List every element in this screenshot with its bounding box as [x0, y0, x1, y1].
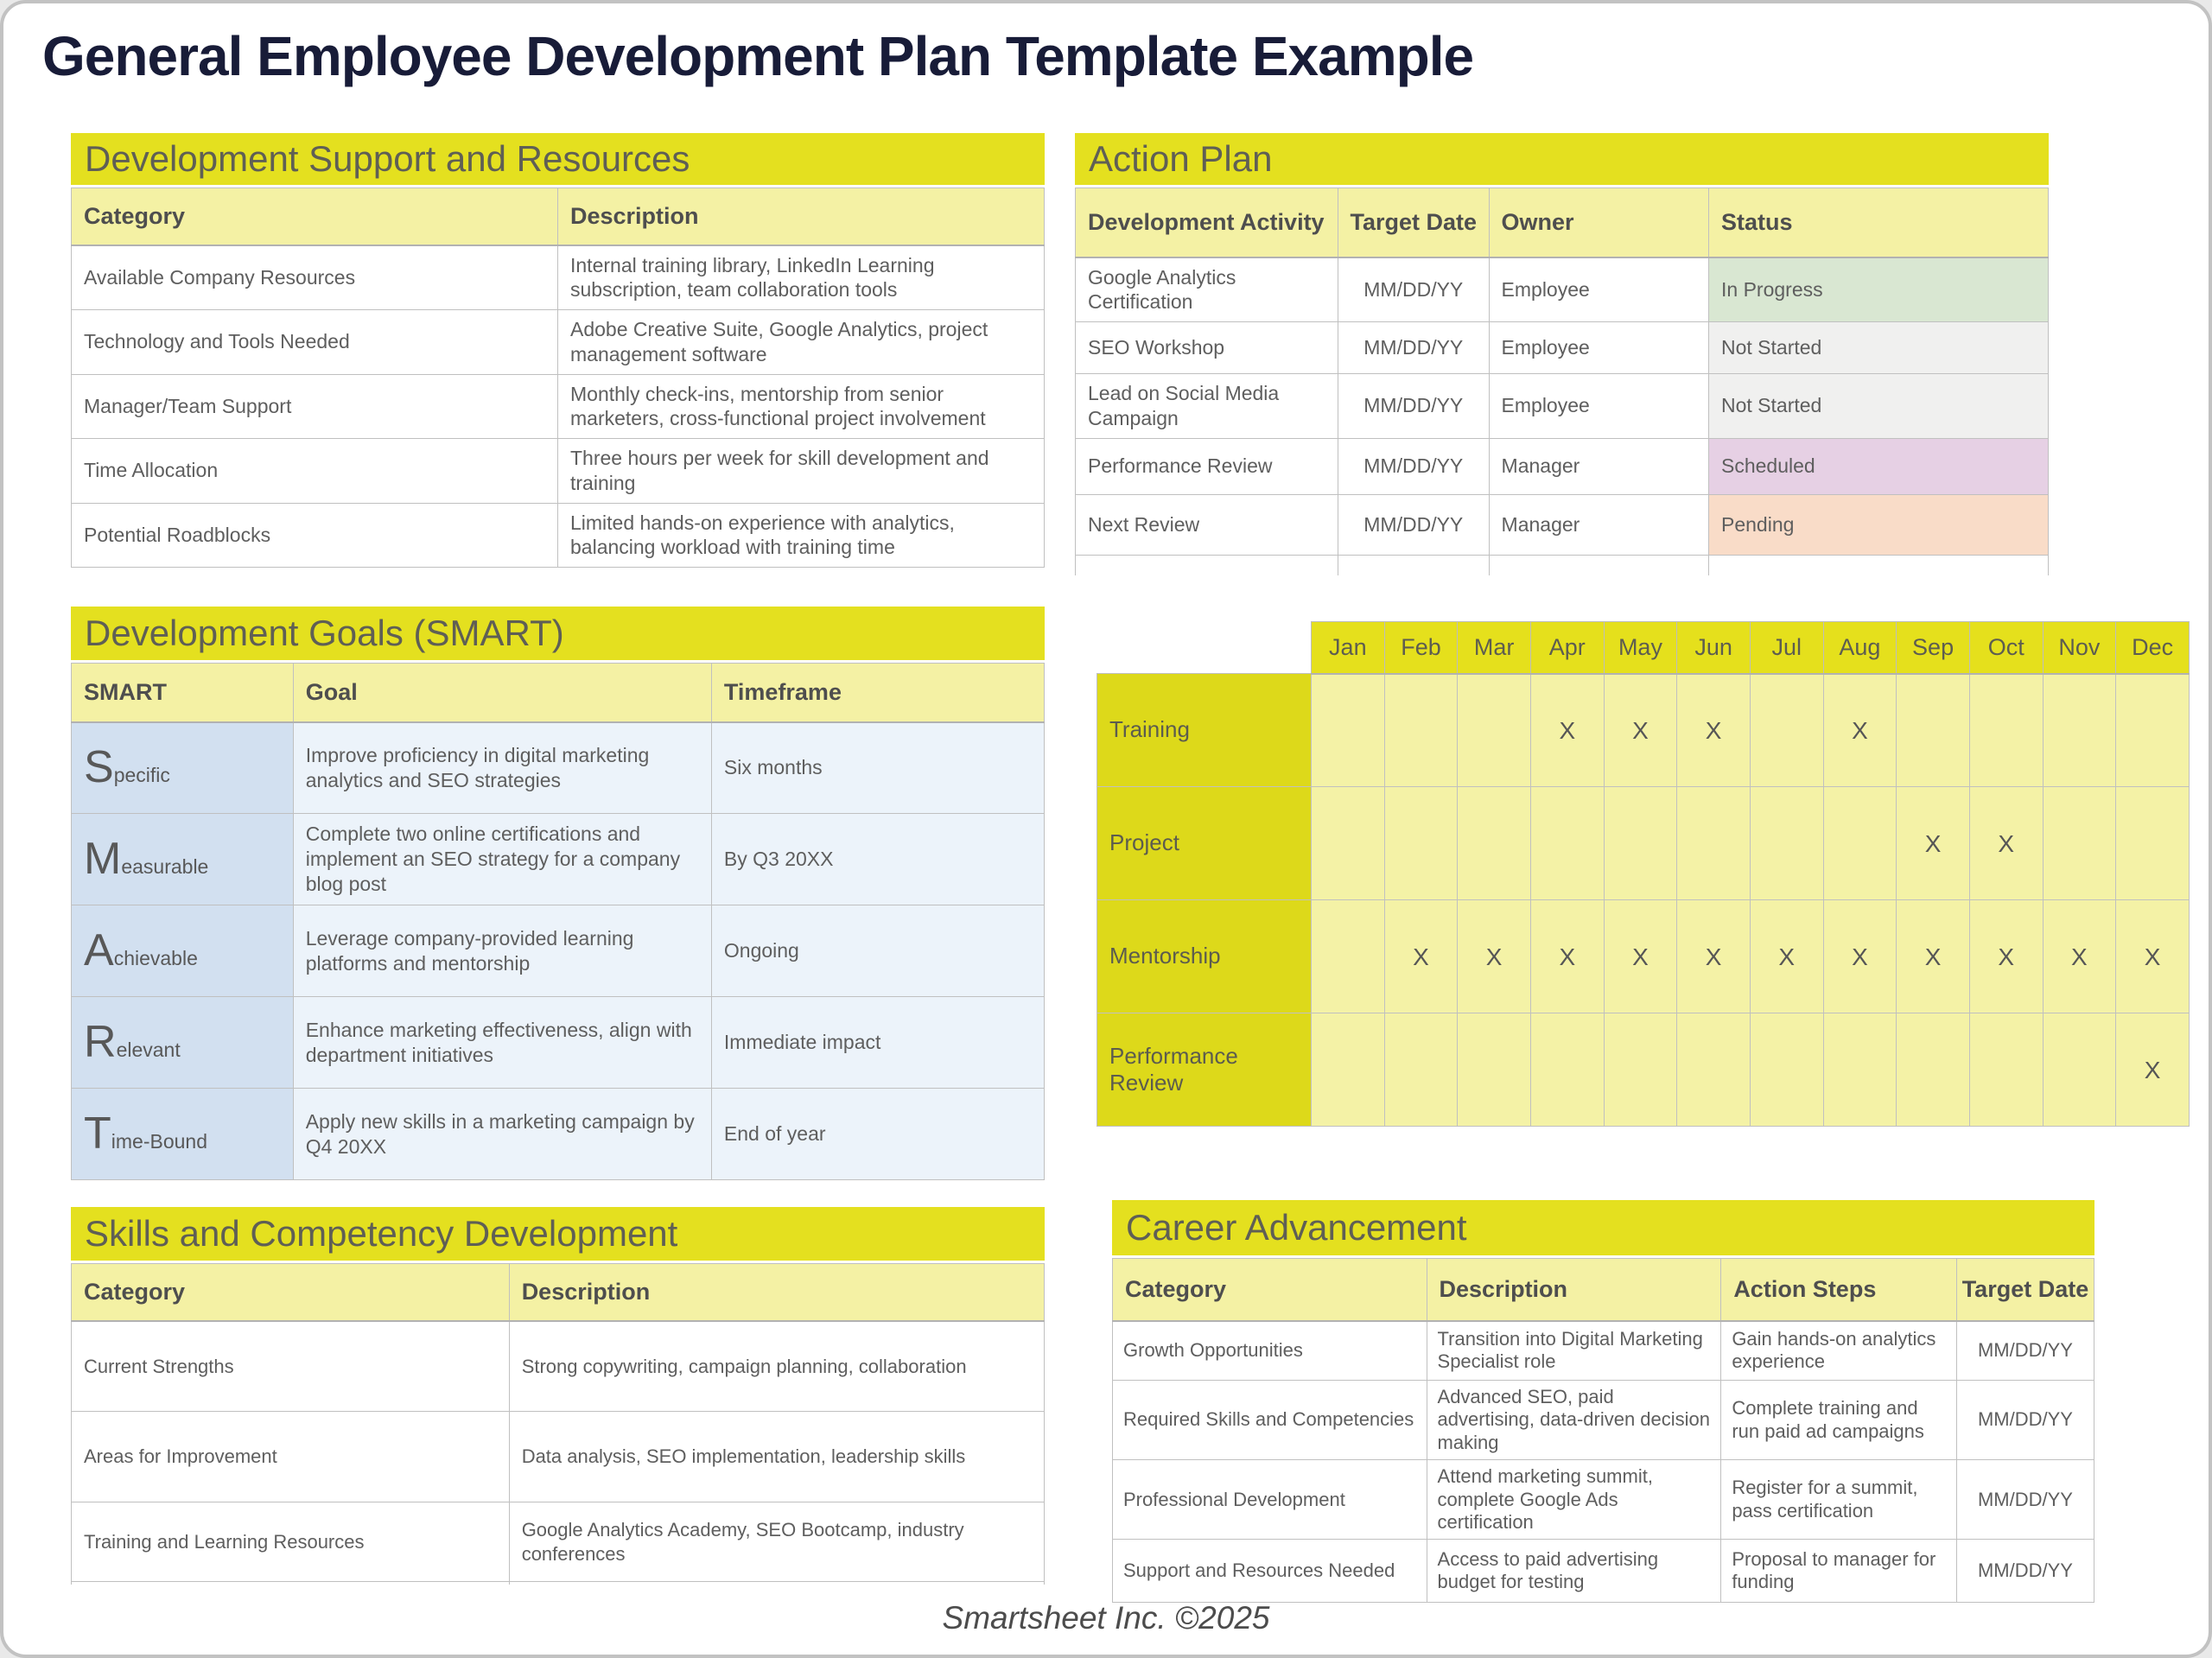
month-header: Feb — [1384, 622, 1458, 674]
header-row: SMART Goal Timeframe — [72, 664, 1045, 722]
col-header-action-steps: Action Steps — [1721, 1259, 1957, 1321]
goal-cell: Enhance marketing effectiveness, align w… — [293, 997, 711, 1089]
action-steps-cell: Proposal to manager for funding — [1721, 1540, 1957, 1603]
description-cell: Attend marketing summit, complete Google… — [1427, 1460, 1721, 1540]
description-cell: Data analysis, SEO implementation, leade… — [509, 1412, 1044, 1502]
table-row: Required Skills and Competencies Advance… — [1113, 1381, 2094, 1460]
category-cell: Training and Learning Resources — [72, 1502, 510, 1582]
dev-support-title: Development Support and Resources — [71, 133, 1045, 185]
schedule-cell: X — [1897, 900, 1970, 1013]
table-row: SEO Workshop MM/DD/YY Employee Not Start… — [1076, 322, 2049, 374]
activity-cell: Lead on Social Media Campaign — [1076, 374, 1338, 439]
category-cell: Required Skills and Competencies — [1113, 1381, 1427, 1460]
schedule-cell — [1897, 674, 1970, 787]
smart-letter: R — [84, 1017, 117, 1067]
table-row: Available Company Resources Internal tra… — [72, 245, 1045, 310]
col-header-description: Description — [509, 1264, 1044, 1321]
action-steps-cell: Gain hands-on analytics experience — [1721, 1321, 1957, 1381]
month-header: Dec — [2116, 622, 2190, 674]
header-row: Development Activity Target Date Owner S… — [1076, 188, 2049, 257]
target-date-cell: MM/DD/YY — [1338, 494, 1490, 555]
col-header-description: Description — [1427, 1259, 1721, 1321]
category-cell: Technology and Tools Needed — [72, 310, 558, 375]
col-header-owner: Owner — [1489, 188, 1708, 257]
smart-cell: Time-Bound — [72, 1089, 294, 1180]
status-cell: In Progress — [1709, 257, 2049, 322]
table-row: Next Review MM/DD/YY Manager Pending — [1076, 494, 2049, 555]
schedule-cell — [1530, 787, 1604, 900]
table-row: Support and Resources Needed Access to p… — [1113, 1540, 2094, 1603]
table-row: Relevant Enhance marketing effectiveness… — [72, 997, 1045, 1089]
schedule-cell: X — [2116, 1013, 2190, 1127]
target-date-cell: MM/DD/YY — [1956, 1321, 2094, 1381]
schedule-row-label: Project — [1097, 787, 1312, 900]
timeframe-cell: Six months — [711, 722, 1044, 814]
category-cell: Current Strengths — [72, 1321, 510, 1412]
category-cell: Manager/Team Support — [72, 374, 558, 439]
schedule-cell: X — [1969, 787, 2043, 900]
schedule-cell: X — [2116, 900, 2190, 1013]
career-title: Career Advancement — [1112, 1200, 2094, 1255]
schedule-cell — [1458, 787, 1531, 900]
owner-cell: Employee — [1489, 322, 1708, 374]
description-cell: Three hours per week for skill developme… — [558, 439, 1045, 504]
schedule-cell — [2043, 674, 2116, 787]
goal-cell: Apply new skills in a marketing campaign… — [293, 1089, 711, 1180]
schedule-cell — [1384, 787, 1458, 900]
table-row: Google Analytics Certification MM/DD/YY … — [1076, 257, 2049, 322]
skills-section: Skills and Competency Development Catego… — [71, 1207, 1045, 1585]
schedule-cell: X — [1530, 900, 1604, 1013]
schedule-cell — [1604, 787, 1677, 900]
month-header: Jan — [1312, 622, 1385, 674]
schedule-cell — [1677, 1013, 1751, 1127]
status-cell: Pending — [1709, 494, 2049, 555]
target-date-cell: MM/DD/YY — [1338, 374, 1490, 439]
schedule-row-label: Mentorship — [1097, 900, 1312, 1013]
schedule-cell — [1384, 674, 1458, 787]
description-cell: Transition into Digital Marketing Specia… — [1427, 1321, 1721, 1381]
schedule-cell — [1823, 1013, 1897, 1127]
col-header-goal: Goal — [293, 664, 711, 722]
smart-letter: S — [84, 742, 114, 792]
table-row: Areas for Improvement Data analysis, SEO… — [72, 1412, 1045, 1502]
schedule-cell — [1458, 674, 1531, 787]
copyright-footer: Smartsheet Inc. ©2025 — [3, 1600, 2209, 1636]
schedule-cell — [2043, 787, 2116, 900]
schedule-row: Mentorship X X X X X X X X X X X — [1097, 900, 2190, 1013]
owner-cell: Employee — [1489, 257, 1708, 322]
schedule-cell: X — [1604, 900, 1677, 1013]
table-row: Lead on Social Media Campaign MM/DD/YY E… — [1076, 374, 2049, 439]
schedule-cell — [1750, 787, 1823, 900]
schedule-cell — [1750, 1013, 1823, 1127]
dev-goals-section: Development Goals (SMART) SMART Goal Tim… — [71, 607, 1045, 1180]
activity-cell: SEO Workshop — [1076, 322, 1338, 374]
schedule-chart-table: Jan Feb Mar Apr May Jun Jul Aug Sep Oct … — [1096, 621, 2190, 1127]
table-row: Training and Learning Resources Google A… — [72, 1502, 1045, 1582]
category-cell: Growth Opportunities — [1113, 1321, 1427, 1381]
page-title: General Employee Development Plan Templa… — [42, 24, 1473, 88]
schedule-cell — [1897, 1013, 1970, 1127]
schedule-cell — [1312, 1013, 1385, 1127]
smart-cell: Achievable — [72, 905, 294, 997]
month-header: Sep — [1897, 622, 1970, 674]
action-steps-cell: Register for a summit, pass certificatio… — [1721, 1460, 1957, 1540]
schedule-cell — [1823, 787, 1897, 900]
schedule-cell — [1312, 674, 1385, 787]
dev-goals-title: Development Goals (SMART) — [71, 607, 1045, 660]
schedule-cell — [2116, 674, 2190, 787]
schedule-cell: X — [1823, 900, 1897, 1013]
header-row: Category Description — [72, 1264, 1045, 1321]
category-cell: Support and Resources Needed — [1113, 1540, 1427, 1603]
description-cell: Advanced SEO, paid advertising, data-dri… — [1427, 1381, 1721, 1460]
description-cell: Adobe Creative Suite, Google Analytics, … — [558, 310, 1045, 375]
smart-cell: Measurable — [72, 814, 294, 905]
schedule-cell: X — [1677, 900, 1751, 1013]
col-header-timeframe: Timeframe — [711, 664, 1044, 722]
schedule-cell: X — [1384, 900, 1458, 1013]
description-cell: Internal training library, LinkedIn Lear… — [558, 245, 1045, 310]
dev-goals-table: SMART Goal Timeframe Specific Improve pr… — [71, 663, 1045, 1180]
col-header-category: Category — [72, 1264, 510, 1321]
schedule-cell — [1969, 1013, 2043, 1127]
table-row: Time Allocation Three hours per week for… — [72, 439, 1045, 504]
schedule-row: Project X X — [1097, 787, 2190, 900]
schedule-cell: X — [1823, 674, 1897, 787]
col-header-target-date: Target Date — [1956, 1259, 2094, 1321]
timeframe-cell: End of year — [711, 1089, 1044, 1180]
action-plan-section: Action Plan Development Activity Target … — [1075, 133, 2049, 575]
month-header: Apr — [1530, 622, 1604, 674]
category-cell: Potential Roadblocks — [72, 503, 558, 568]
goal-cell: Improve proficiency in digital marketing… — [293, 722, 711, 814]
schedule-cell — [1384, 1013, 1458, 1127]
month-header: Nov — [2043, 622, 2116, 674]
col-header-activity: Development Activity — [1076, 188, 1338, 257]
schedule-cell: X — [1677, 674, 1751, 787]
skills-table: Category Description Current Strengths S… — [71, 1263, 1045, 1585]
header-row: Category Description Action Steps Target… — [1113, 1259, 2094, 1321]
header-row: Category Description — [72, 188, 1045, 245]
target-date-cell: MM/DD/YY — [1338, 322, 1490, 374]
target-date-cell: MM/DD/YY — [1956, 1460, 2094, 1540]
status-cell: Not Started — [1709, 374, 2049, 439]
blank-corner-cell — [1097, 622, 1312, 674]
owner-cell: Employee — [1489, 374, 1708, 439]
action-plan-table: Development Activity Target Date Owner S… — [1075, 187, 2049, 575]
month-header: May — [1604, 622, 1677, 674]
schedule-cell — [1677, 787, 1751, 900]
table-row: Growth Opportunities Transition into Dig… — [1113, 1321, 2094, 1381]
table-row: Specific Improve proficiency in digital … — [72, 722, 1045, 814]
smart-cell: Relevant — [72, 997, 294, 1089]
status-cell: Scheduled — [1709, 438, 2049, 494]
table-row: Technology and Tools Needed Adobe Creati… — [72, 310, 1045, 375]
activity-cell: Next Review — [1076, 494, 1338, 555]
description-cell: Google Analytics Academy, SEO Bootcamp, … — [509, 1502, 1044, 1582]
table-row: Manager/Team Support Monthly check-ins, … — [72, 374, 1045, 439]
table-row: Current Strengths Strong copywriting, ca… — [72, 1321, 1045, 1412]
table-row-partial — [72, 1582, 1045, 1585]
schedule-cell — [2116, 787, 2190, 900]
schedule-chart-section: Jan Feb Mar Apr May Jun Jul Aug Sep Oct … — [1096, 621, 2190, 1127]
schedule-cell: X — [1969, 900, 2043, 1013]
career-table: Category Description Action Steps Target… — [1112, 1258, 2094, 1603]
target-date-cell: MM/DD/YY — [1338, 438, 1490, 494]
schedule-cell — [1312, 787, 1385, 900]
schedule-cell: X — [2043, 900, 2116, 1013]
col-header-smart: SMART — [72, 664, 294, 722]
schedule-row-label: Performance Review — [1097, 1013, 1312, 1127]
month-header: Jun — [1677, 622, 1751, 674]
dev-support-section: Development Support and Resources Catego… — [71, 133, 1045, 568]
goal-cell: Complete two online certifications and i… — [293, 814, 711, 905]
target-date-cell: MM/DD/YY — [1956, 1540, 2094, 1603]
schedule-row: Training X X X X — [1097, 674, 2190, 787]
activity-cell: Google Analytics Certification — [1076, 257, 1338, 322]
smart-letter: M — [84, 834, 121, 884]
skills-title: Skills and Competency Development — [71, 1207, 1045, 1261]
category-cell: Professional Development — [1113, 1460, 1427, 1540]
month-header: Mar — [1458, 622, 1531, 674]
table-row: Potential Roadblocks Limited hands-on ex… — [72, 503, 1045, 568]
description-cell: Monthly check-ins, mentorship from senio… — [558, 374, 1045, 439]
description-cell: Access to paid advertising budget for te… — [1427, 1540, 1721, 1603]
schedule-cell — [2043, 1013, 2116, 1127]
schedule-row: Performance Review X — [1097, 1013, 2190, 1127]
table-row: Measurable Complete two online certifica… — [72, 814, 1045, 905]
schedule-cell: X — [1458, 900, 1531, 1013]
smart-cell: Specific — [72, 722, 294, 814]
dev-support-table: Category Description Available Company R… — [71, 187, 1045, 568]
category-cell: Areas for Improvement — [72, 1412, 510, 1502]
schedule-cell: X — [1897, 787, 1970, 900]
career-section: Career Advancement Category Description … — [1112, 1200, 2094, 1603]
goal-cell: Leverage company-provided learning platf… — [293, 905, 711, 997]
smart-letter: A — [84, 925, 114, 975]
description-cell: Strong copywriting, campaign planning, c… — [509, 1321, 1044, 1412]
schedule-cell: X — [1530, 674, 1604, 787]
description-cell: Limited hands-on experience with analyti… — [558, 503, 1045, 568]
owner-cell: Manager — [1489, 438, 1708, 494]
schedule-cell: X — [1750, 900, 1823, 1013]
activity-cell: Performance Review — [1076, 438, 1338, 494]
col-header-status: Status — [1709, 188, 2049, 257]
schedule-row-label: Training — [1097, 674, 1312, 787]
timeframe-cell: By Q3 20XX — [711, 814, 1044, 905]
schedule-cell — [1604, 1013, 1677, 1127]
schedule-cell: X — [1604, 674, 1677, 787]
table-row: Professional Development Attend marketin… — [1113, 1460, 2094, 1540]
smart-letter: T — [84, 1109, 111, 1159]
month-header: Oct — [1969, 622, 2043, 674]
month-header: Aug — [1823, 622, 1897, 674]
col-header-category: Category — [72, 188, 558, 245]
category-cell: Available Company Resources — [72, 245, 558, 310]
target-date-cell: MM/DD/YY — [1956, 1381, 2094, 1460]
table-row: Performance Review MM/DD/YY Manager Sche… — [1076, 438, 2049, 494]
col-header-target-date: Target Date — [1338, 188, 1490, 257]
month-header-row: Jan Feb Mar Apr May Jun Jul Aug Sep Oct … — [1097, 622, 2190, 674]
col-header-category: Category — [1113, 1259, 1427, 1321]
table-row: Time-Bound Apply new skills in a marketi… — [72, 1089, 1045, 1180]
status-cell: Not Started — [1709, 322, 2049, 374]
table-row-partial — [1076, 555, 2049, 575]
category-cell: Time Allocation — [72, 439, 558, 504]
timeframe-cell: Immediate impact — [711, 997, 1044, 1089]
timeframe-cell: Ongoing — [711, 905, 1044, 997]
schedule-cell — [1530, 1013, 1604, 1127]
schedule-cell — [1458, 1013, 1531, 1127]
schedule-cell — [1312, 900, 1385, 1013]
owner-cell: Manager — [1489, 494, 1708, 555]
action-plan-title: Action Plan — [1075, 133, 2049, 185]
schedule-cell — [1750, 674, 1823, 787]
document-page: General Employee Development Plan Templa… — [0, 0, 2212, 1658]
month-header: Jul — [1750, 622, 1823, 674]
schedule-cell — [1969, 674, 2043, 787]
action-steps-cell: Complete training and run paid ad campai… — [1721, 1381, 1957, 1460]
table-row: Achievable Leverage company-provided lea… — [72, 905, 1045, 997]
col-header-description: Description — [558, 188, 1045, 245]
target-date-cell: MM/DD/YY — [1338, 257, 1490, 322]
